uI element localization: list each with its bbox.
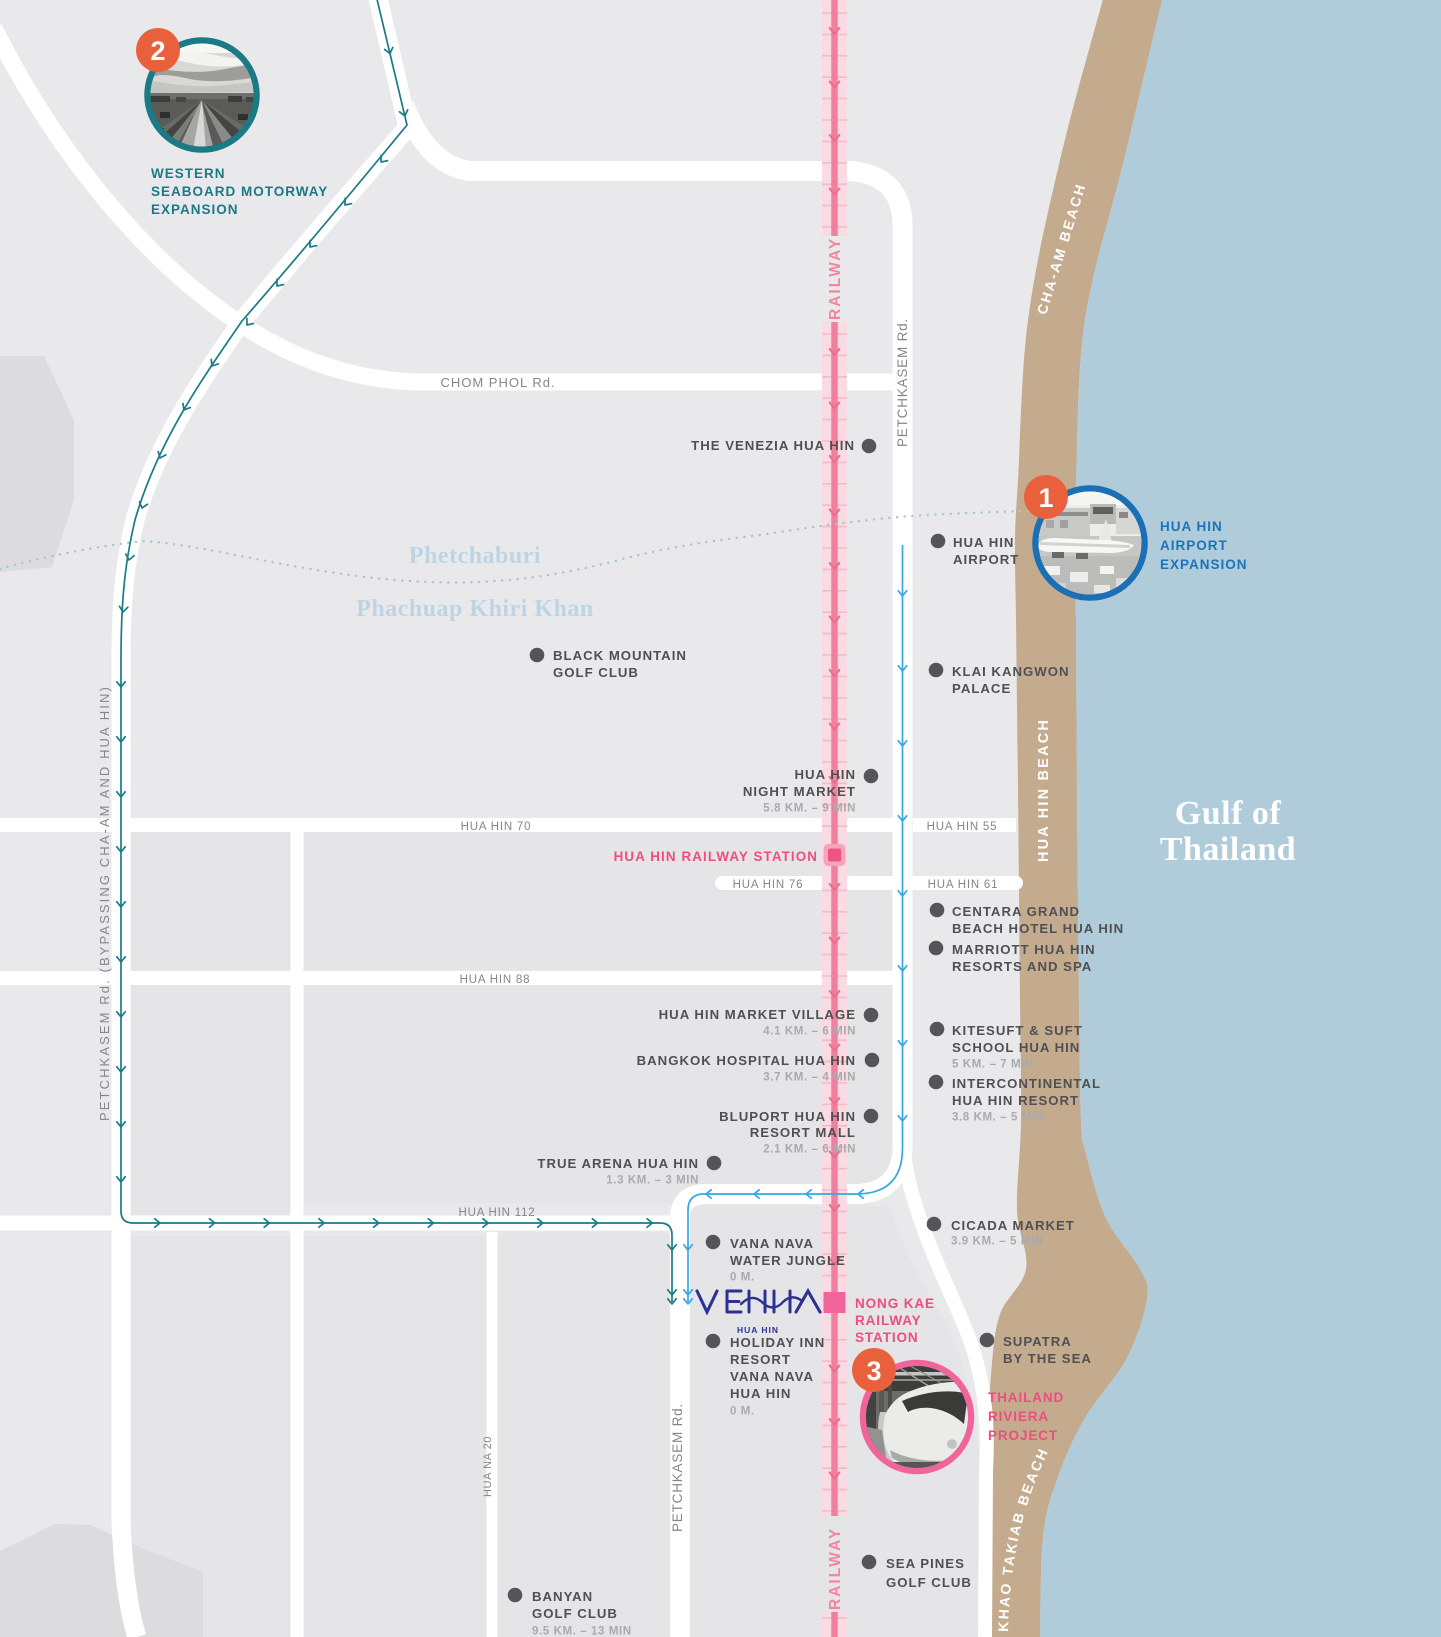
svg-text:EXPANSION: EXPANSION (151, 202, 239, 217)
svg-text:PETCHKASEM Rd.: PETCHKASEM Rd. (670, 1403, 685, 1532)
svg-text:BLACK MOUNTAIN: BLACK MOUNTAIN (553, 648, 687, 663)
svg-text:SEA PINES: SEA PINES (886, 1556, 965, 1571)
svg-text:5 KM. – 7 MIN: 5 KM. – 7 MIN (952, 1058, 1034, 1070)
svg-text:CICADA MARKET: CICADA MARKET (951, 1218, 1075, 1233)
svg-text:HUA NA 20: HUA NA 20 (482, 1436, 494, 1497)
svg-text:AIRPORT: AIRPORT (953, 552, 1019, 567)
svg-text:Thailand: Thailand (1160, 831, 1296, 868)
svg-text:GOLF CLUB: GOLF CLUB (553, 665, 639, 680)
svg-text:HUA HIN: HUA HIN (730, 1386, 791, 1401)
svg-text:Phetchaburi: Phetchaburi (409, 543, 541, 569)
svg-text:HUA HIN 70: HUA HIN 70 (461, 821, 532, 833)
svg-text:KITESUFT & SUFT: KITESUFT & SUFT (952, 1023, 1083, 1038)
svg-text:PALACE: PALACE (952, 681, 1011, 696)
svg-text:VANA NAVA: VANA NAVA (730, 1369, 814, 1384)
svg-text:SEABOARD MOTORWAY: SEABOARD MOTORWAY (151, 184, 328, 199)
svg-text:Phachuap Khiri Khan: Phachuap Khiri Khan (356, 596, 594, 622)
svg-text:1.3 KM. – 3 MIN: 1.3 KM. – 3 MIN (606, 1174, 699, 1186)
svg-text:PETCHKASEM Rd.: PETCHKASEM Rd. (895, 318, 910, 447)
svg-text:HOLIDAY INN: HOLIDAY INN (730, 1335, 825, 1350)
svg-text:RAILWAY: RAILWAY (827, 1527, 844, 1610)
svg-text:NIGHT MARKET: NIGHT MARKET (743, 784, 856, 799)
svg-text:2.1 KM. – 6 MIN: 2.1 KM. – 6 MIN (763, 1143, 856, 1155)
svg-text:HUA HIN RESORT: HUA HIN RESORT (952, 1093, 1079, 1108)
svg-text:SUPATRA: SUPATRA (1003, 1334, 1072, 1349)
svg-text:BANYAN: BANYAN (532, 1589, 593, 1604)
svg-text:HUA HIN 112: HUA HIN 112 (459, 1207, 536, 1219)
svg-text:HUA HIN BEACH: HUA HIN BEACH (1036, 718, 1052, 862)
svg-text:3: 3 (866, 1356, 881, 1386)
svg-text:BANGKOK HOSPITAL HUA HIN: BANGKOK HOSPITAL HUA HIN (637, 1053, 856, 1068)
svg-text:GOLF CLUB: GOLF CLUB (886, 1575, 972, 1590)
svg-text:HUA HIN: HUA HIN (1160, 519, 1223, 534)
svg-text:HUA HIN: HUA HIN (953, 535, 1014, 550)
svg-text:RAILWAY: RAILWAY (827, 237, 844, 320)
svg-text:HUA HIN: HUA HIN (795, 767, 856, 782)
svg-text:BEACH HOTEL HUA HIN: BEACH HOTEL HUA HIN (952, 921, 1124, 936)
svg-text:HUA HIN 55: HUA HIN 55 (927, 821, 998, 833)
svg-text:SCHOOL HUA HIN: SCHOOL HUA HIN (952, 1040, 1080, 1055)
svg-text:3.8 KM. – 5 MIN: 3.8 KM. – 5 MIN (952, 1111, 1045, 1123)
svg-text:PETCHKASEM Rd. (BYPASSING CHA-: PETCHKASEM Rd. (BYPASSING CHA-AM AND HUA… (97, 685, 112, 1121)
svg-text:RIVIERA: RIVIERA (988, 1409, 1049, 1424)
svg-text:STATION: STATION (855, 1330, 919, 1345)
svg-text:HUA HIN 76: HUA HIN 76 (733, 879, 804, 891)
svg-text:THE VENEZIA HUA HIN: THE VENEZIA HUA HIN (691, 438, 855, 453)
svg-text:VANA NAVA: VANA NAVA (730, 1236, 814, 1251)
svg-text:HUA HIN: HUA HIN (737, 1325, 779, 1335)
svg-text:0 M.: 0 M. (730, 1271, 755, 1283)
svg-text:INTERCONTINENTAL: INTERCONTINENTAL (952, 1076, 1101, 1091)
svg-text:PROJECT: PROJECT (988, 1428, 1058, 1443)
svg-text:9.5 KM. – 13 MIN: 9.5 KM. – 13 MIN (532, 1625, 632, 1637)
svg-text:CENTARA GRAND: CENTARA GRAND (952, 904, 1080, 919)
svg-text:5.8 KM. – 9 MIN: 5.8 KM. – 9 MIN (763, 802, 856, 814)
svg-text:RESORT MALL: RESORT MALL (750, 1125, 856, 1140)
svg-text:NONG KAE: NONG KAE (855, 1296, 935, 1311)
svg-text:GOLF CLUB: GOLF CLUB (532, 1606, 618, 1621)
svg-text:EXPANSION: EXPANSION (1160, 557, 1248, 572)
svg-text:TRUE ARENA HUA HIN: TRUE ARENA HUA HIN (537, 1156, 699, 1171)
svg-text:HUA HIN RAILWAY STATION: HUA HIN RAILWAY STATION (614, 849, 818, 864)
svg-text:BLUPORT HUA HIN: BLUPORT HUA HIN (719, 1109, 856, 1124)
svg-text:BY THE SEA: BY THE SEA (1003, 1351, 1092, 1366)
svg-text:RESORTS AND SPA: RESORTS AND SPA (952, 959, 1092, 974)
svg-text:WATER JUNGLE: WATER JUNGLE (730, 1253, 846, 1268)
svg-text:MARRIOTT HUA HIN: MARRIOTT HUA HIN (952, 942, 1096, 957)
svg-text:RAILWAY: RAILWAY (855, 1313, 922, 1328)
svg-text:WESTERN: WESTERN (151, 166, 226, 181)
svg-text:HUA HIN MARKET VILLAGE: HUA HIN MARKET VILLAGE (659, 1007, 856, 1022)
svg-text:AIRPORT: AIRPORT (1160, 538, 1228, 553)
svg-text:2: 2 (150, 36, 165, 66)
svg-text:RESORT: RESORT (730, 1352, 791, 1367)
svg-text:CHOM PHOL Rd.: CHOM PHOL Rd. (440, 375, 555, 390)
svg-text:Gulf of: Gulf of (1175, 795, 1282, 832)
svg-text:3.7 KM. – 4 MIN: 3.7 KM. – 4 MIN (763, 1071, 856, 1083)
svg-text:THAILAND: THAILAND (988, 1390, 1064, 1405)
svg-text:HUA HIN 61: HUA HIN 61 (928, 879, 999, 891)
svg-text:0 M.: 0 M. (730, 1405, 755, 1417)
svg-text:HUA HIN 88: HUA HIN 88 (460, 974, 531, 986)
svg-text:4.1 KM. – 6 MIN: 4.1 KM. – 6 MIN (763, 1025, 856, 1037)
svg-text:3.9 KM. – 5 MIN: 3.9 KM. – 5 MIN (951, 1235, 1044, 1247)
svg-text:KLAI KANGWON: KLAI KANGWON (952, 664, 1070, 679)
svg-text:1: 1 (1038, 483, 1053, 513)
